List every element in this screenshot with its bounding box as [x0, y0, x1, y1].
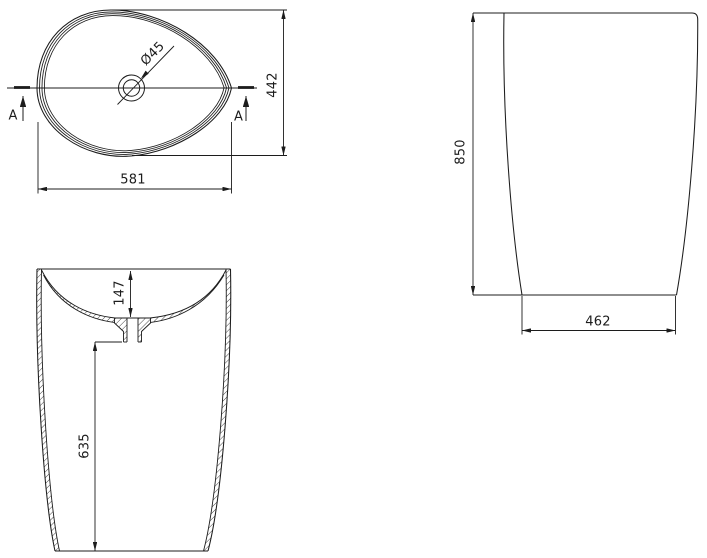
- section-view: [37, 269, 231, 551]
- top-view: [7, 10, 287, 194]
- overall-depth-label: 442: [266, 72, 279, 97]
- drawing-linework: [0, 0, 707, 558]
- hatch-drain-right: [138, 318, 151, 342]
- bowl-depth-label: 147: [114, 280, 127, 305]
- front-view: [473, 13, 698, 335]
- hatch-bowl-right: [150, 270, 226, 323]
- overall-width-label: 581: [120, 174, 145, 187]
- section-hatching: [37, 269, 231, 551]
- drain-leader-arrowhead: [141, 71, 149, 79]
- hatch-drain-left: [115, 318, 128, 342]
- dimension-635: [95, 342, 122, 551]
- section-outline: [37, 269, 231, 551]
- overall-height-label: 850: [454, 139, 467, 164]
- under-drain-height-label: 635: [79, 433, 92, 458]
- basin-rim-contours: [37, 10, 232, 156]
- section-marker-left-label: A: [8, 110, 17, 123]
- hatch-bowl-left: [42, 270, 116, 323]
- section-marker-right-label: A: [234, 111, 243, 124]
- base-width-label: 462: [585, 315, 610, 328]
- front-outline: [473, 13, 698, 295]
- technical-drawing-sheet: Ø45 442 581 A A 147 635 850 462: [0, 0, 707, 558]
